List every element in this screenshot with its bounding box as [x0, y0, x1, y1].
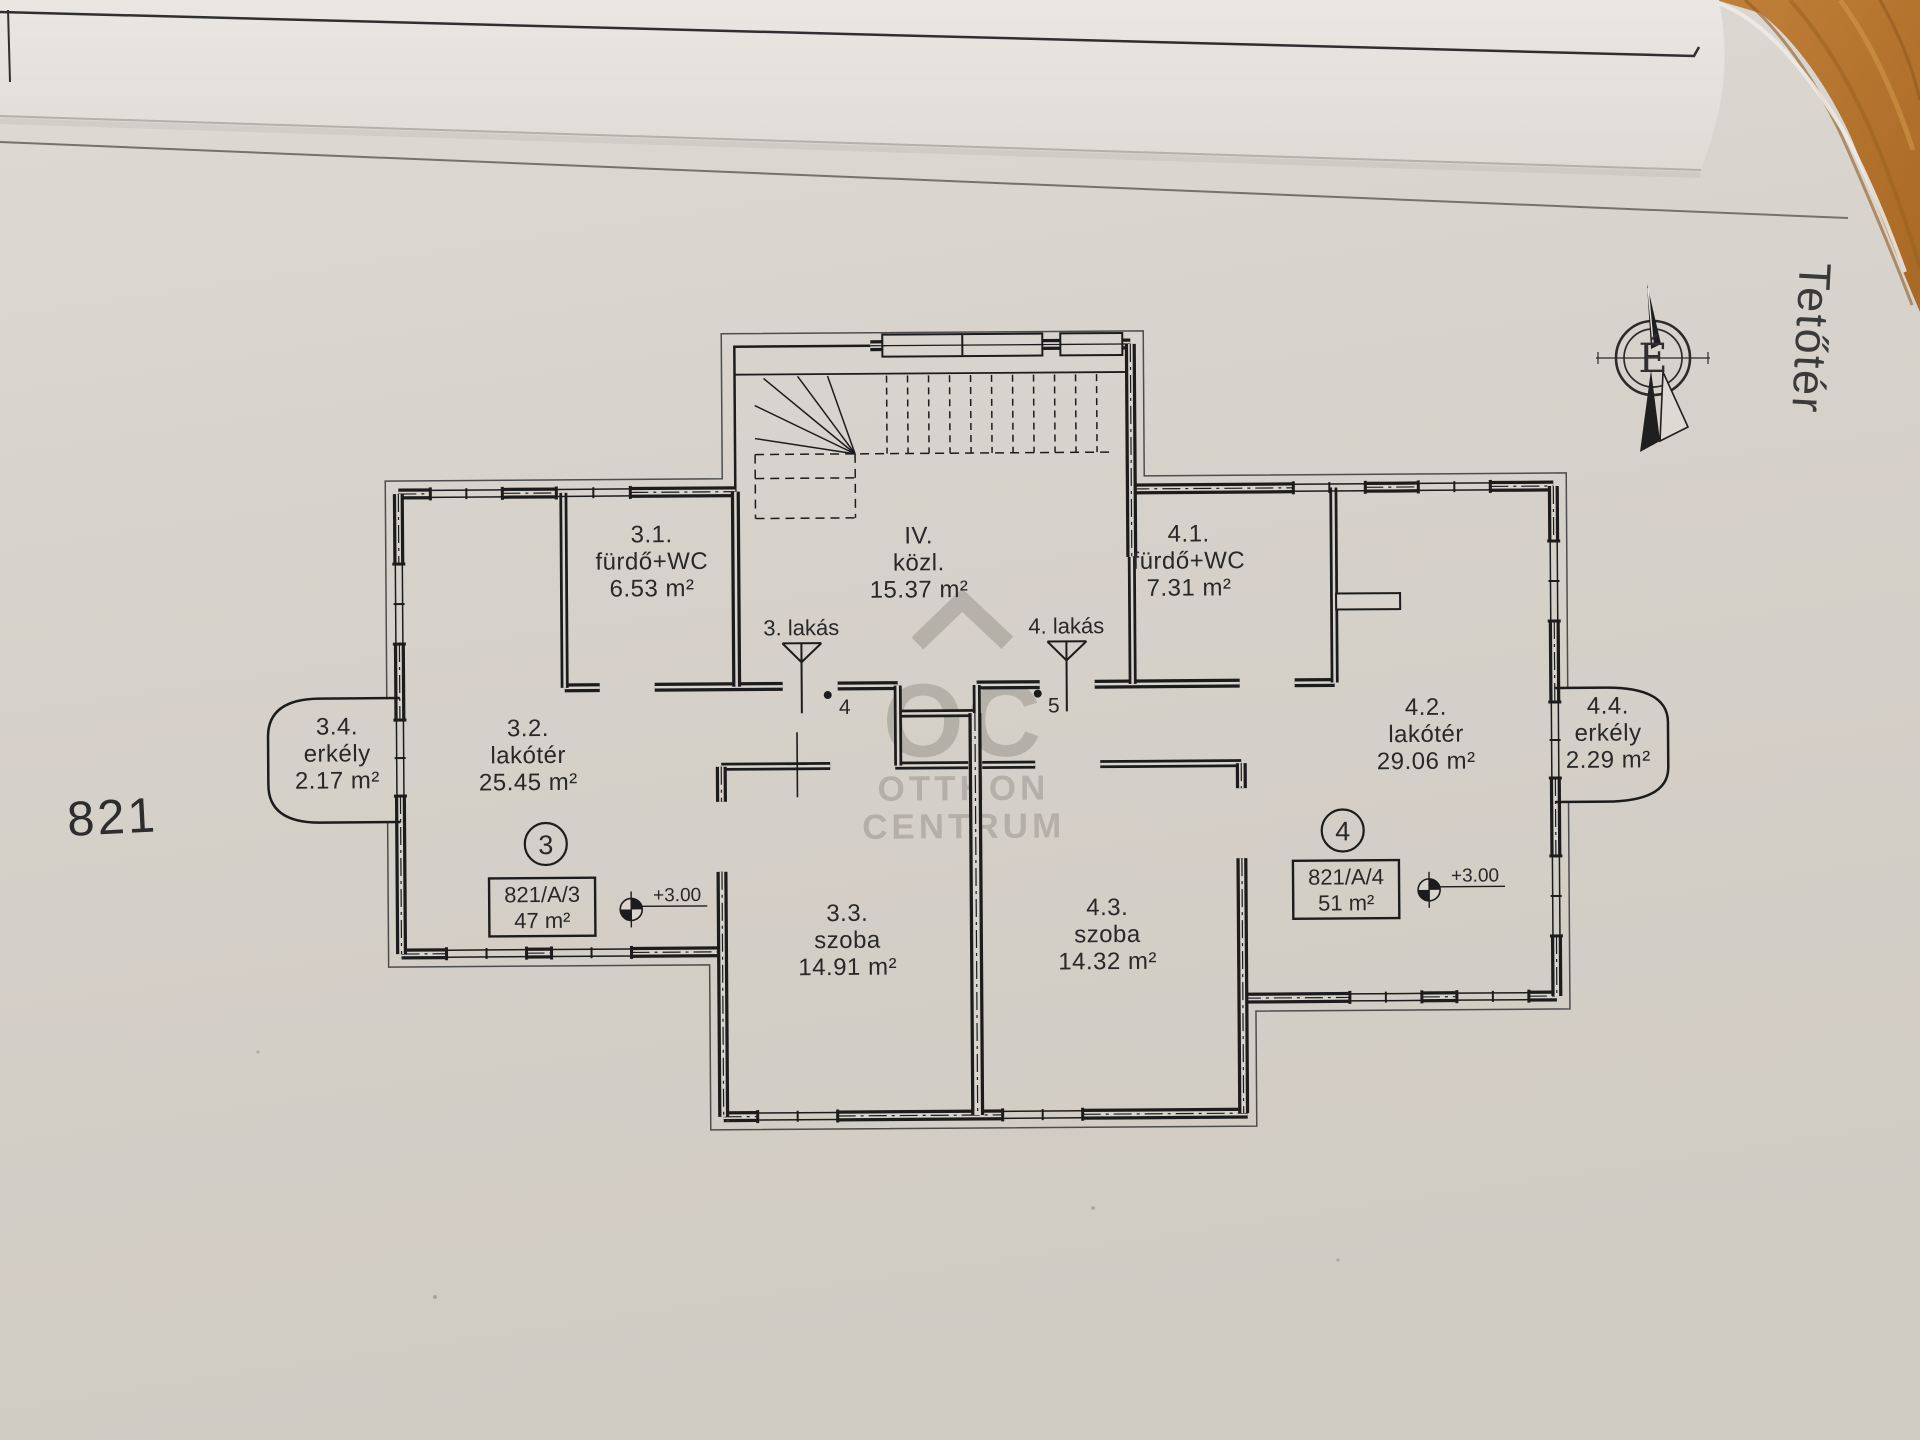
room-32-no: 3.2. [507, 715, 549, 742]
room-iv-no: IV. [904, 522, 933, 549]
room-43-area: 14.32 m² [1058, 948, 1157, 976]
room-44-area: 2.29 m² [1566, 746, 1651, 774]
floorplan-canvas: OC OTTHON CENTRUM [0, 0, 1920, 1440]
wall-segment [895, 765, 968, 766]
room-32-name: lakótér [490, 742, 566, 770]
room-iv-name: közl. [893, 549, 945, 576]
room-32-area: 25.45 m² [479, 769, 578, 797]
room-44-no: 4.4. [1587, 692, 1629, 719]
room-44-name: erkély [1574, 719, 1641, 746]
room-33-no: 3.3. [826, 900, 868, 927]
watermark-otthon: OTTHON [877, 769, 1049, 809]
room-33-area: 14.91 m² [798, 954, 897, 982]
room-iv-area: 15.37 m² [870, 576, 969, 604]
apartment-3-number: 3 [538, 830, 553, 860]
room-34-area: 2.17 m² [295, 767, 380, 795]
watermark-centrum: CENTRUM [862, 806, 1065, 846]
lot-area-4: 51 m² [1318, 890, 1374, 915]
room-42-no: 4.2. [1405, 694, 1447, 721]
level-value-4: +3.00 [1451, 865, 1499, 886]
level-value-3: +3.00 [653, 885, 701, 906]
utility-point-4-label: 4 [839, 696, 851, 719]
utility-point-4-dot [824, 691, 832, 699]
wall-segment [655, 686, 783, 687]
wall-segment [1095, 683, 1240, 684]
sheet-number: 821 [66, 788, 159, 847]
wall-segment [898, 713, 977, 714]
wall-segment [735, 492, 736, 687]
wall-segment [1554, 621, 1555, 702]
room-42-area: 29.06 m² [1377, 748, 1476, 776]
apartment-4-number: 4 [1335, 816, 1350, 846]
entrance-4-label: 4. lakás [1028, 613, 1104, 639]
utility-point-5-dot [1034, 690, 1042, 698]
stair-window-band [882, 333, 1122, 357]
wall-segment [563, 493, 564, 688]
room-42-name: lakótér [1388, 721, 1464, 749]
room-41-name: fürdő+WC [1132, 547, 1245, 575]
room-43-no: 4.3. [1086, 894, 1128, 921]
room-33-name: szoba [814, 927, 881, 954]
room-41-no: 4.1. [1168, 520, 1210, 547]
wall-segment [399, 644, 400, 720]
room-34-no: 3.4. [316, 713, 358, 740]
utility-point-5-label: 5 [1048, 694, 1060, 717]
lot-number-4: 821/A/4 [1308, 864, 1384, 890]
lot-area-3: 47 m² [514, 908, 570, 933]
room-43-name: szoba [1074, 921, 1141, 948]
entrance-3-label: 3. lakás [763, 615, 839, 641]
compass-letter: É [1638, 335, 1667, 382]
room-34-name: erkély [304, 740, 371, 767]
wall-segment [632, 952, 723, 953]
wall-segment [1100, 763, 1241, 764]
wall-segment [721, 766, 830, 767]
room-31-no: 3.1. [631, 521, 673, 548]
room-31-name: fürdő+WC [595, 548, 708, 576]
floor-title: Tetőtér [1782, 261, 1841, 415]
bathroom-41-stub-wall [1336, 593, 1400, 609]
room-31-area: 6.53 m² [609, 575, 694, 603]
lot-number-3: 821/A/3 [504, 882, 580, 908]
wall-segment [1333, 488, 1334, 683]
photographed-floorplan: OC OTTHON CENTRUM [0, 0, 1920, 1440]
wall-segment [1132, 557, 1133, 684]
wall-segment [1555, 778, 1556, 856]
room-41-area: 7.31 m² [1146, 574, 1231, 602]
